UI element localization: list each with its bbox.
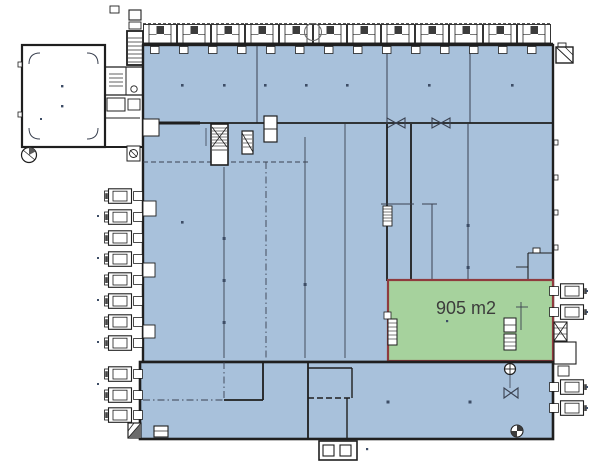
dock-truck bbox=[105, 408, 143, 423]
dock-truck bbox=[105, 273, 143, 288]
dock-truck bbox=[105, 315, 143, 330]
dock-truck bbox=[105, 336, 143, 351]
spiral-stair-icon bbox=[22, 148, 37, 163]
ramp-icon bbox=[128, 423, 141, 438]
dock-truck bbox=[105, 294, 143, 309]
floor-plan-page: 905 m2 bbox=[0, 0, 600, 469]
south-dock bbox=[319, 441, 368, 460]
facade-bay bbox=[449, 24, 483, 44]
right-dock-row bbox=[550, 140, 589, 415]
facade-bay bbox=[483, 24, 517, 44]
stair-tower-icon bbox=[127, 31, 143, 65]
top-right-stair-icon bbox=[556, 43, 573, 63]
facade-bay bbox=[143, 24, 177, 44]
highlighted-unit[interactable]: 905 m2 bbox=[384, 280, 553, 361]
connector-rooms bbox=[105, 6, 143, 161]
dock-truck bbox=[550, 401, 587, 416]
dock-truck bbox=[550, 380, 587, 395]
floor-plan-svg: 905 m2 bbox=[0, 0, 600, 469]
bottom-wing bbox=[140, 362, 553, 439]
fan-icon bbox=[511, 425, 523, 437]
facade-bay bbox=[517, 24, 551, 44]
facade-bay bbox=[177, 24, 211, 44]
facade-bay bbox=[347, 24, 381, 44]
facade-bay bbox=[245, 24, 279, 44]
dock-truck bbox=[105, 388, 143, 403]
dock-truck bbox=[550, 305, 587, 320]
stair-icon bbox=[242, 131, 253, 154]
facade-bay bbox=[415, 24, 449, 44]
dock-truck bbox=[550, 284, 587, 299]
facade-bay bbox=[211, 24, 245, 44]
facade-bay bbox=[279, 24, 313, 44]
facade-bay bbox=[313, 24, 347, 44]
dock-truck bbox=[105, 189, 143, 204]
facade-bay bbox=[381, 24, 415, 44]
dock-truck bbox=[105, 367, 143, 382]
column-room-icon bbox=[127, 146, 140, 161]
dock-truck bbox=[105, 210, 143, 225]
small-room-icon bbox=[154, 426, 168, 437]
right-stair-icon bbox=[554, 322, 567, 341]
unit-area-label: 905 m2 bbox=[436, 298, 496, 318]
dock-truck bbox=[105, 231, 143, 246]
ladder-icon bbox=[383, 206, 392, 226]
annex-building bbox=[18, 45, 105, 163]
dock-truck bbox=[105, 252, 143, 266]
left-dock-row bbox=[97, 189, 143, 438]
